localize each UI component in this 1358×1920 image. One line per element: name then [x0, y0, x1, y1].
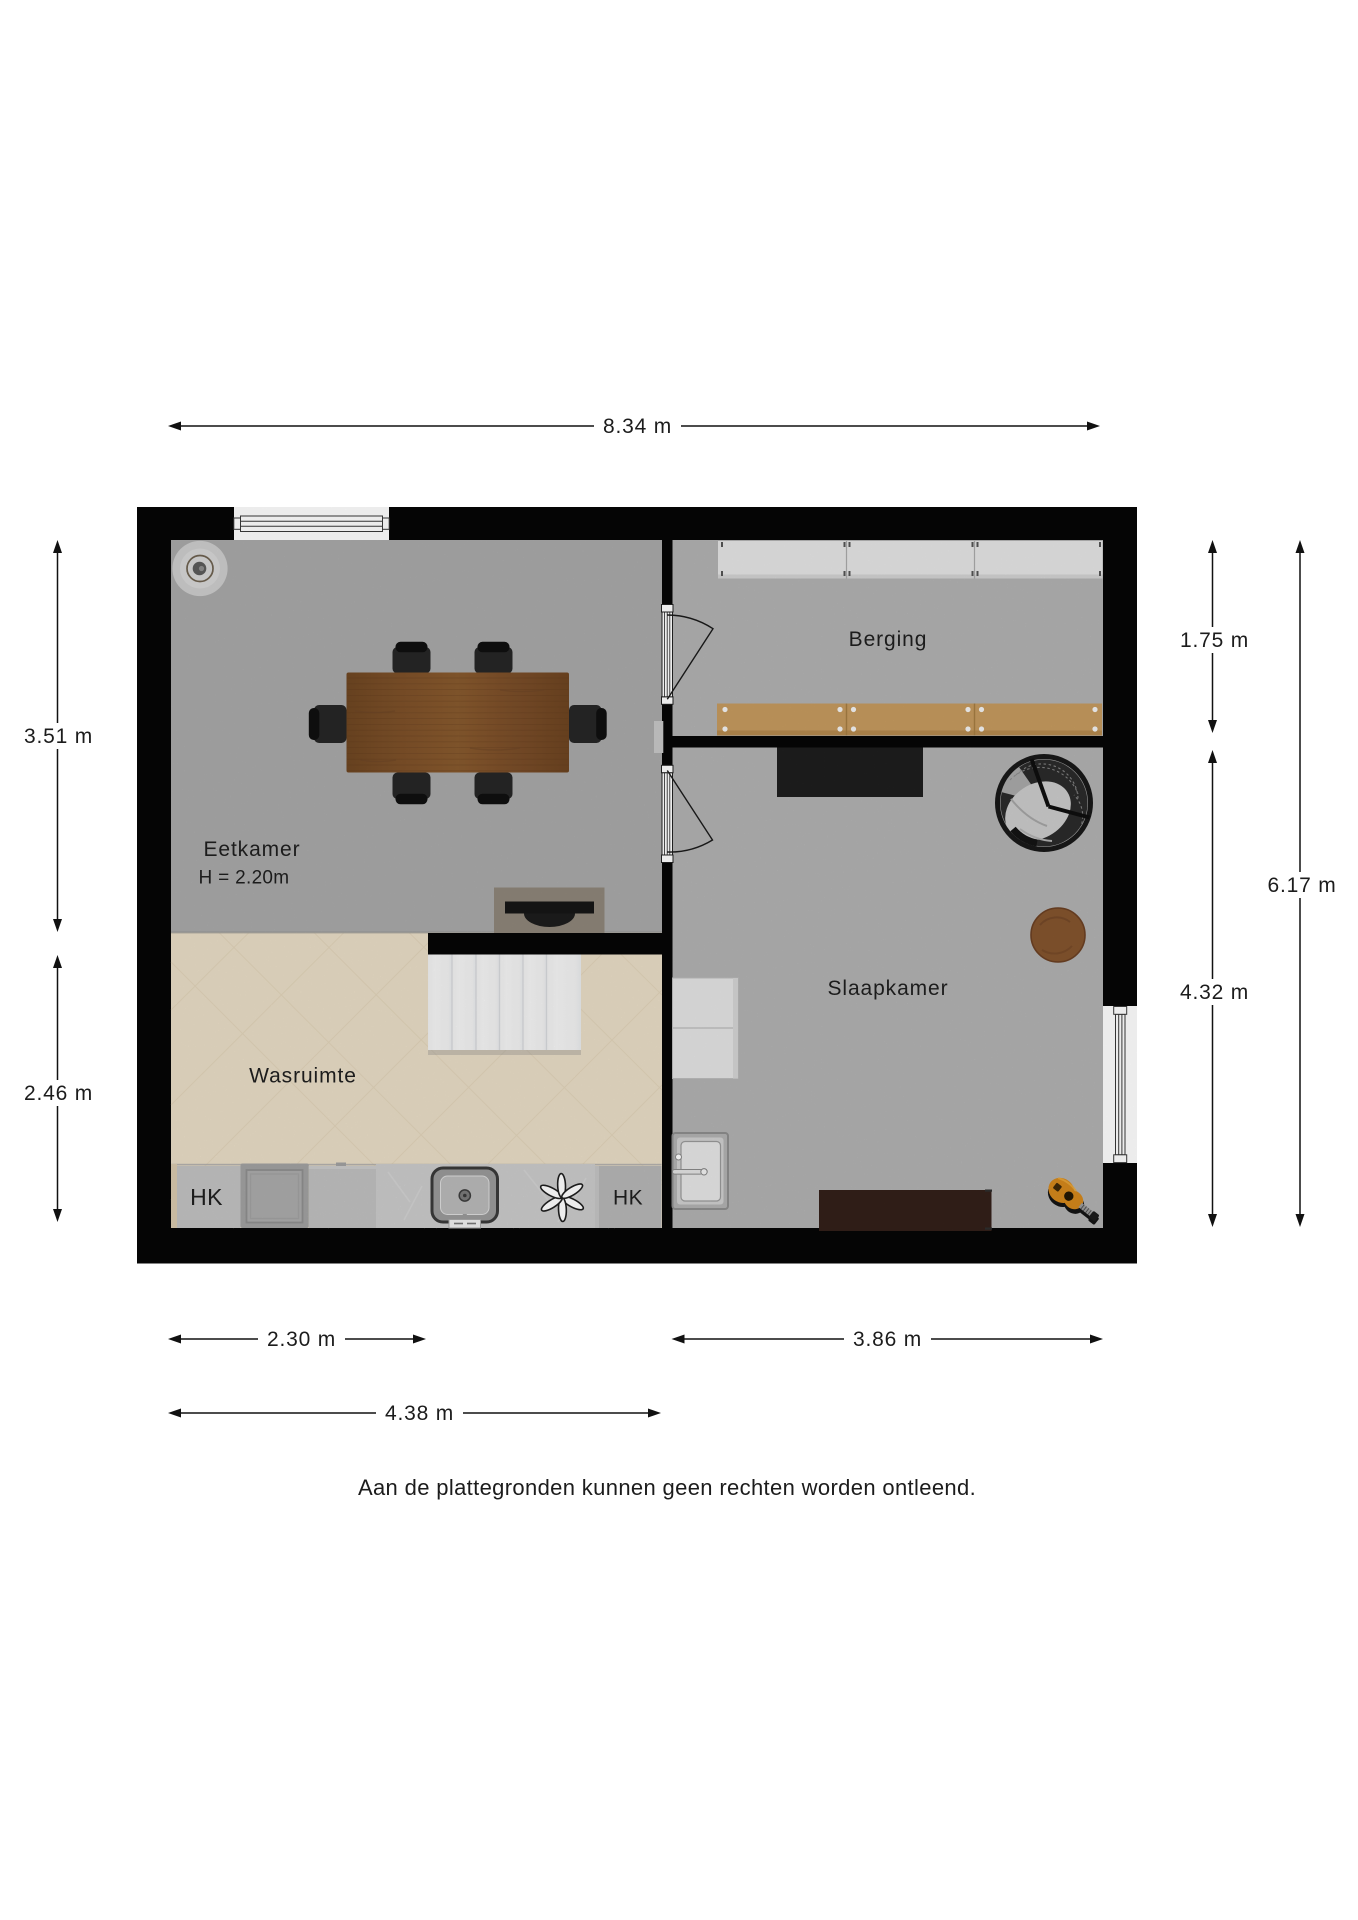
svg-text:H = 2.20m: H = 2.20m	[199, 868, 290, 889]
svg-text:HK: HK	[613, 1187, 643, 1210]
svg-text:4.32 m: 4.32 m	[1180, 981, 1249, 1004]
svg-text:Wasruimte: Wasruimte	[249, 1065, 357, 1088]
svg-text:Berging: Berging	[849, 628, 928, 651]
svg-text:4.38 m: 4.38 m	[385, 1402, 454, 1425]
svg-text:3.86 m: 3.86 m	[853, 1328, 922, 1351]
svg-text:Eetkamer: Eetkamer	[203, 838, 300, 861]
svg-text:HK: HK	[190, 1184, 223, 1210]
svg-text:2.30 m: 2.30 m	[267, 1328, 336, 1351]
svg-text:6.17 m: 6.17 m	[1268, 874, 1337, 897]
svg-text:Slaapkamer: Slaapkamer	[827, 977, 948, 1000]
svg-text:8.34 m: 8.34 m	[603, 415, 672, 438]
svg-text:1.75 m: 1.75 m	[1180, 629, 1249, 652]
svg-text:3.51 m: 3.51 m	[24, 725, 93, 748]
svg-text:Aan de plattegronden kunnen ge: Aan de plattegronden kunnen geen rechten…	[358, 1475, 976, 1500]
svg-text:2.46 m: 2.46 m	[24, 1082, 93, 1105]
